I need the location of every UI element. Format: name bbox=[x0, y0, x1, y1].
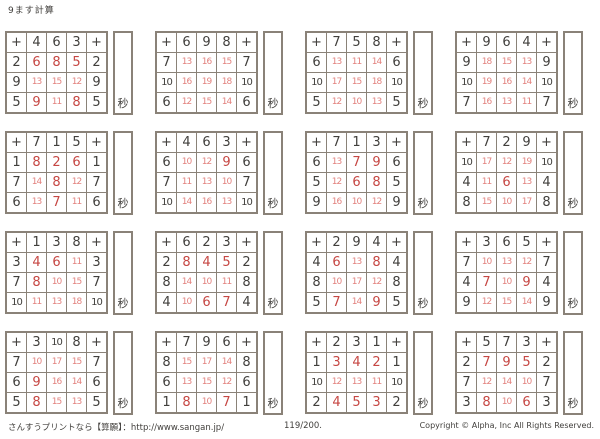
plus-operator: + bbox=[156, 32, 177, 53]
row-header-repeat: 1 bbox=[237, 393, 258, 414]
answer-cell: 10 bbox=[177, 293, 197, 314]
grid-header-row: +365+ bbox=[456, 232, 557, 253]
row-header-repeat: 1 bbox=[387, 353, 408, 373]
row-header: 7 bbox=[6, 273, 27, 293]
column-header: 3 bbox=[67, 32, 87, 53]
column-header: 7 bbox=[177, 332, 197, 353]
answer-cell: 16 bbox=[477, 93, 497, 114]
answer-cell: 13 bbox=[327, 53, 347, 73]
row-header-repeat: 9 bbox=[537, 293, 558, 314]
grid-row: 71013127 bbox=[456, 253, 557, 273]
addition-grid: +138+34611378101571011131810 bbox=[5, 231, 108, 314]
plus-operator: + bbox=[87, 132, 108, 153]
answer-cell: 8 bbox=[27, 153, 47, 173]
answer-cell: 4 bbox=[347, 353, 367, 373]
column-header: 1 bbox=[347, 132, 367, 153]
answer-cell: 12 bbox=[327, 373, 347, 393]
grid-header-row: +796+ bbox=[156, 332, 257, 353]
column-header: 9 bbox=[347, 232, 367, 253]
answer-cell: 2 bbox=[47, 153, 67, 173]
puzzle-block: +365+7101312747109491215149秒 bbox=[455, 231, 600, 331]
addition-grid: +463+6101296711131071014161310 bbox=[155, 131, 258, 214]
answer-cell: 11 bbox=[67, 193, 87, 214]
plus-operator: + bbox=[156, 132, 177, 153]
answer-cell: 8 bbox=[367, 253, 387, 273]
grid-row: 181071 bbox=[156, 393, 257, 414]
addition-grid: +713+61379651268591610129 bbox=[305, 131, 408, 214]
seconds-label: 秒 bbox=[268, 195, 279, 213]
answer-cell: 8 bbox=[27, 273, 47, 293]
answer-cell: 6 bbox=[497, 173, 517, 193]
seconds-label: 秒 bbox=[568, 195, 579, 213]
row-header: 2 bbox=[306, 393, 327, 414]
answer-cell: 10 bbox=[477, 253, 497, 273]
answer-cell: 6 bbox=[67, 153, 87, 173]
row-header: 10 bbox=[156, 73, 177, 93]
answer-cell: 10 bbox=[497, 193, 517, 214]
answer-cell: 2 bbox=[367, 353, 387, 373]
column-header: 3 bbox=[27, 332, 47, 353]
row-header-repeat: 5 bbox=[387, 173, 408, 193]
seconds-label: 秒 bbox=[568, 295, 579, 313]
row-header-repeat: 6 bbox=[387, 153, 408, 173]
grid-row: 5815135 bbox=[6, 393, 107, 414]
plus-operator: + bbox=[156, 332, 177, 353]
answer-cell: 9 bbox=[27, 93, 47, 114]
row-header: 6 bbox=[306, 53, 327, 73]
column-header: 2 bbox=[197, 232, 217, 253]
answer-cell: 7 bbox=[477, 353, 497, 373]
row-header-repeat: 8 bbox=[387, 273, 408, 293]
row-header-repeat: 2 bbox=[87, 53, 108, 73]
answer-cell: 9 bbox=[27, 373, 47, 393]
column-header: 8 bbox=[367, 32, 387, 53]
addition-grid: +3108+7101715769161465815135 bbox=[5, 331, 108, 414]
answer-cell: 14 bbox=[177, 193, 197, 214]
plus-operator: + bbox=[6, 32, 27, 53]
footer-site-credit: さんすうプリントなら【算願】：http://www.sangan.jp/ bbox=[8, 421, 224, 433]
column-header: 9 bbox=[197, 332, 217, 353]
grid-row: 81517148 bbox=[156, 353, 257, 373]
grid-row: 6916146 bbox=[6, 373, 107, 393]
puzzle-block: +713+61379651268591610129秒 bbox=[305, 131, 455, 231]
answer-cell: 12 bbox=[177, 93, 197, 114]
answer-cell: 9 bbox=[367, 153, 387, 173]
grid-row: 471094 bbox=[456, 273, 557, 293]
grid-header-row: +463+ bbox=[6, 32, 107, 53]
grid-row: 81410118 bbox=[156, 273, 257, 293]
column-header: 3 bbox=[367, 132, 387, 153]
row-header: 5 bbox=[306, 93, 327, 114]
puzzle-block: +573+2795271214107381063秒 bbox=[455, 331, 600, 431]
answer-cell: 10 bbox=[327, 273, 347, 293]
puzzle-block: +294+46138481017128571495秒 bbox=[305, 231, 455, 331]
row-header: 5 bbox=[306, 293, 327, 314]
grid-row: 27952 bbox=[456, 353, 557, 373]
row-header: 6 bbox=[156, 373, 177, 393]
plus-operator: + bbox=[456, 32, 477, 53]
answer-cell: 13 bbox=[347, 373, 367, 393]
grid-row: 1012131110 bbox=[306, 373, 407, 393]
answer-cell: 13 bbox=[217, 193, 237, 214]
answer-cell: 7 bbox=[327, 293, 347, 314]
answer-cell: 11 bbox=[47, 93, 67, 114]
answer-cell: 15 bbox=[67, 273, 87, 293]
answer-cell: 8 bbox=[67, 93, 87, 114]
column-header: 1 bbox=[47, 132, 67, 153]
grid-row: 18261 bbox=[6, 153, 107, 173]
time-box: 秒 bbox=[113, 331, 133, 415]
row-header-repeat: 5 bbox=[87, 93, 108, 114]
row-header-repeat: 8 bbox=[237, 273, 258, 293]
puzzle-block: +796+8151714861315126181071秒 bbox=[155, 331, 305, 431]
row-header: 9 bbox=[306, 193, 327, 214]
column-header: 7 bbox=[327, 32, 347, 53]
answer-cell: 13 bbox=[177, 373, 197, 393]
column-header: 6 bbox=[217, 332, 237, 353]
grid-header-row: +231+ bbox=[306, 332, 407, 353]
row-header: 6 bbox=[156, 153, 177, 173]
answer-cell: 18 bbox=[477, 53, 497, 73]
answer-cell: 12 bbox=[477, 373, 497, 393]
grid-row: 71214107 bbox=[456, 373, 557, 393]
plus-operator: + bbox=[387, 332, 408, 353]
grid-row: 6101296 bbox=[156, 153, 257, 173]
answer-cell: 16 bbox=[197, 53, 217, 73]
row-header: 4 bbox=[456, 173, 477, 193]
plus-operator: + bbox=[156, 232, 177, 253]
answer-cell: 9 bbox=[517, 273, 537, 293]
row-header: 5 bbox=[306, 173, 327, 193]
addition-grid: +463+2685291315129591185 bbox=[5, 31, 108, 114]
grid-row: 91815139 bbox=[456, 53, 557, 73]
answer-cell: 6 bbox=[197, 293, 217, 314]
answer-cell: 14 bbox=[517, 73, 537, 93]
answer-cell: 14 bbox=[347, 293, 367, 314]
column-header: 5 bbox=[477, 332, 497, 353]
plus-operator: + bbox=[237, 332, 258, 353]
grid-row: 51210135 bbox=[306, 93, 407, 114]
row-header-repeat: 10 bbox=[537, 73, 558, 93]
answer-cell: 14 bbox=[367, 53, 387, 73]
seconds-label: 秒 bbox=[418, 95, 429, 113]
row-header: 6 bbox=[306, 153, 327, 173]
grid-header-row: +294+ bbox=[306, 232, 407, 253]
answer-cell: 16 bbox=[177, 73, 197, 93]
page-footer: さんすうプリントなら【算願】：http://www.sangan.jp/ 119… bbox=[0, 421, 600, 435]
row-header: 7 bbox=[6, 173, 27, 193]
answer-cell: 15 bbox=[347, 73, 367, 93]
answer-cell: 10 bbox=[47, 273, 67, 293]
addition-grid: +623+2845281410118410674 bbox=[155, 231, 258, 314]
answer-cell: 12 bbox=[327, 173, 347, 193]
column-header: 5 bbox=[517, 232, 537, 253]
answer-cell: 13 bbox=[27, 193, 47, 214]
puzzle-block: +715+1826171481276137116秒 bbox=[5, 131, 155, 231]
column-header: 6 bbox=[47, 32, 67, 53]
grid-row: 24532 bbox=[306, 393, 407, 414]
answer-cell: 10 bbox=[497, 273, 517, 293]
row-header-repeat: 6 bbox=[237, 373, 258, 393]
grid-row: 1014161310 bbox=[156, 193, 257, 214]
grid-row: 346113 bbox=[6, 253, 107, 273]
time-box: 秒 bbox=[563, 231, 583, 315]
row-header: 6 bbox=[6, 193, 27, 214]
row-header-repeat: 1 bbox=[87, 153, 108, 173]
answer-cell: 12 bbox=[67, 173, 87, 193]
row-header-repeat: 5 bbox=[387, 293, 408, 314]
plus-operator: + bbox=[306, 232, 327, 253]
answer-cell: 8 bbox=[47, 173, 67, 193]
answer-cell: 11 bbox=[517, 93, 537, 114]
answer-cell: 14 bbox=[517, 293, 537, 314]
grid-row: 61315126 bbox=[156, 373, 257, 393]
column-header: 7 bbox=[477, 132, 497, 153]
row-header: 2 bbox=[156, 253, 177, 273]
answer-cell: 18 bbox=[67, 293, 87, 314]
answer-cell: 6 bbox=[517, 393, 537, 414]
row-header: 6 bbox=[156, 93, 177, 114]
grid-header-row: +463+ bbox=[156, 132, 257, 153]
grid-header-row: +623+ bbox=[156, 232, 257, 253]
row-header-repeat: 7 bbox=[237, 173, 258, 193]
row-header-repeat: 6 bbox=[237, 153, 258, 173]
time-box: 秒 bbox=[263, 231, 283, 315]
row-header: 7 bbox=[156, 173, 177, 193]
answer-cell: 13 bbox=[177, 53, 197, 73]
column-header: 6 bbox=[177, 32, 197, 53]
answer-cell: 17 bbox=[347, 273, 367, 293]
time-box: 秒 bbox=[563, 31, 583, 115]
answer-cell: 19 bbox=[477, 73, 497, 93]
answer-cell: 5 bbox=[67, 53, 87, 73]
row-header-repeat: 6 bbox=[87, 193, 108, 214]
plus-operator: + bbox=[456, 232, 477, 253]
row-header-repeat: 6 bbox=[387, 53, 408, 73]
seconds-label: 秒 bbox=[268, 95, 279, 113]
addition-grid: +758+61311146101715181051210135 bbox=[305, 31, 408, 114]
answer-cell: 16 bbox=[497, 73, 517, 93]
answer-cell: 13 bbox=[67, 393, 87, 414]
plus-operator: + bbox=[537, 332, 558, 353]
grid-header-row: +729+ bbox=[456, 132, 557, 153]
row-header-repeat: 7 bbox=[537, 373, 558, 393]
grid-header-row: +758+ bbox=[306, 32, 407, 53]
answer-cell: 5 bbox=[517, 353, 537, 373]
plus-operator: + bbox=[306, 32, 327, 53]
grid-row: 7810157 bbox=[6, 273, 107, 293]
plus-operator: + bbox=[237, 32, 258, 53]
row-header-repeat: 10 bbox=[387, 73, 408, 93]
answer-cell: 10 bbox=[177, 153, 197, 173]
column-header: 8 bbox=[67, 332, 87, 353]
row-header-repeat: 7 bbox=[87, 273, 108, 293]
row-header-repeat: 4 bbox=[537, 273, 558, 293]
seconds-label: 秒 bbox=[268, 395, 279, 413]
addition-grid: +715+1826171481276137116 bbox=[5, 131, 108, 214]
row-header: 1 bbox=[6, 153, 27, 173]
addition-grid: +964+91815139101916141071613117 bbox=[455, 31, 558, 114]
plus-operator: + bbox=[87, 232, 108, 253]
answer-cell: 12 bbox=[477, 293, 497, 314]
answer-cell: 17 bbox=[197, 353, 217, 373]
grid-row: 71316157 bbox=[156, 53, 257, 73]
grid-row: 571495 bbox=[306, 293, 407, 314]
row-header-repeat: 3 bbox=[537, 393, 558, 414]
answer-cell: 15 bbox=[67, 353, 87, 373]
column-header: 5 bbox=[67, 132, 87, 153]
seconds-label: 秒 bbox=[418, 195, 429, 213]
answer-cell: 11 bbox=[67, 253, 87, 273]
answer-cell: 13 bbox=[327, 153, 347, 173]
addition-grid: +698+71316157101619181061215146 bbox=[155, 31, 258, 114]
row-header-repeat: 10 bbox=[387, 373, 408, 393]
row-header: 2 bbox=[6, 53, 27, 73]
answer-cell: 11 bbox=[217, 273, 237, 293]
answer-cell: 15 bbox=[217, 53, 237, 73]
footer-copyright: Copyright © Alpha, Inc All Rights Reserv… bbox=[420, 421, 594, 430]
row-header: 3 bbox=[6, 253, 27, 273]
puzzle-block: +698+71316157101619181061215146秒 bbox=[155, 31, 305, 131]
answer-cell: 12 bbox=[217, 373, 237, 393]
column-header: 3 bbox=[347, 332, 367, 353]
plus-operator: + bbox=[306, 132, 327, 153]
time-box: 秒 bbox=[263, 331, 283, 415]
answer-cell: 14 bbox=[177, 273, 197, 293]
row-header-repeat: 10 bbox=[237, 73, 258, 93]
grid-header-row: +573+ bbox=[456, 332, 557, 353]
grid-row: 91215149 bbox=[456, 293, 557, 314]
row-header: 9 bbox=[456, 53, 477, 73]
row-header-repeat: 8 bbox=[537, 193, 558, 214]
column-header: 9 bbox=[517, 132, 537, 153]
answer-cell: 5 bbox=[347, 393, 367, 414]
row-header-repeat: 10 bbox=[87, 293, 108, 314]
grid-row: 28452 bbox=[156, 253, 257, 273]
row-header-repeat: 3 bbox=[87, 253, 108, 273]
row-header-repeat: 5 bbox=[87, 393, 108, 414]
grid-row: 1017121910 bbox=[456, 153, 557, 173]
answer-cell: 19 bbox=[197, 73, 217, 93]
grid-row: 81017128 bbox=[306, 273, 407, 293]
column-header: 3 bbox=[477, 232, 497, 253]
plus-operator: + bbox=[537, 132, 558, 153]
grid-row: 1011131810 bbox=[6, 293, 107, 314]
time-box: 秒 bbox=[413, 331, 433, 415]
answer-cell: 5 bbox=[217, 253, 237, 273]
answer-cell: 6 bbox=[27, 53, 47, 73]
row-header: 9 bbox=[456, 293, 477, 314]
time-box: 秒 bbox=[263, 31, 283, 115]
plus-operator: + bbox=[237, 132, 258, 153]
grid-row: 1016191810 bbox=[156, 73, 257, 93]
answer-cell: 3 bbox=[327, 353, 347, 373]
grid-header-row: +698+ bbox=[156, 32, 257, 53]
answer-cell: 11 bbox=[27, 293, 47, 314]
plus-operator: + bbox=[537, 32, 558, 53]
time-box: 秒 bbox=[113, 31, 133, 115]
grid-row: 71113107 bbox=[156, 173, 257, 193]
answer-cell: 18 bbox=[367, 73, 387, 93]
answer-cell: 12 bbox=[497, 153, 517, 173]
seconds-label: 秒 bbox=[268, 295, 279, 313]
answer-cell: 4 bbox=[197, 253, 217, 273]
plus-operator: + bbox=[456, 132, 477, 153]
column-header: 4 bbox=[517, 32, 537, 53]
answer-cell: 12 bbox=[67, 73, 87, 93]
row-header-repeat: 7 bbox=[537, 93, 558, 114]
row-header: 10 bbox=[306, 73, 327, 93]
row-header: 7 bbox=[156, 53, 177, 73]
grid-header-row: +713+ bbox=[306, 132, 407, 153]
row-header: 8 bbox=[156, 353, 177, 373]
seconds-label: 秒 bbox=[118, 95, 129, 113]
time-box: 秒 bbox=[563, 131, 583, 215]
column-header: 3 bbox=[517, 332, 537, 353]
column-header: 8 bbox=[67, 232, 87, 253]
answer-cell: 6 bbox=[347, 173, 367, 193]
answer-cell: 8 bbox=[477, 393, 497, 414]
puzzle-block: +623+2845281410118410674秒 bbox=[155, 231, 305, 331]
column-header: 8 bbox=[217, 32, 237, 53]
row-header-repeat: 10 bbox=[537, 153, 558, 173]
row-header: 6 bbox=[6, 373, 27, 393]
plus-operator: + bbox=[6, 232, 27, 253]
row-header: 8 bbox=[156, 273, 177, 293]
row-header-repeat: 2 bbox=[237, 253, 258, 273]
seconds-label: 秒 bbox=[568, 95, 579, 113]
answer-cell: 13 bbox=[47, 293, 67, 314]
answer-cell: 10 bbox=[27, 353, 47, 373]
plus-operator: + bbox=[306, 332, 327, 353]
answer-cell: 12 bbox=[367, 193, 387, 214]
grid-row: 71613117 bbox=[456, 93, 557, 114]
time-box: 秒 bbox=[413, 31, 433, 115]
row-header: 2 bbox=[456, 353, 477, 373]
answer-cell: 15 bbox=[47, 73, 67, 93]
answer-cell: 14 bbox=[27, 173, 47, 193]
answer-cell: 14 bbox=[217, 93, 237, 114]
grid-row: 81510178 bbox=[456, 193, 557, 214]
grid-row: 613796 bbox=[306, 153, 407, 173]
puzzle-block: +964+91815139101916141071613117秒 bbox=[455, 31, 600, 131]
row-header: 1 bbox=[156, 393, 177, 414]
answer-cell: 9 bbox=[217, 153, 237, 173]
answer-cell: 10 bbox=[217, 173, 237, 193]
answer-cell: 10 bbox=[197, 273, 217, 293]
answer-cell: 4 bbox=[27, 253, 47, 273]
row-header-repeat: 5 bbox=[387, 93, 408, 114]
page-title: 9ます計算 bbox=[8, 3, 55, 16]
answer-cell: 15 bbox=[197, 93, 217, 114]
row-header: 8 bbox=[456, 193, 477, 214]
row-header: 9 bbox=[6, 73, 27, 93]
row-header-repeat: 10 bbox=[237, 193, 258, 214]
answer-cell: 14 bbox=[67, 373, 87, 393]
answer-cell: 12 bbox=[197, 153, 217, 173]
grid-row: 410674 bbox=[156, 293, 257, 314]
plus-operator: + bbox=[537, 232, 558, 253]
column-header: 6 bbox=[497, 232, 517, 253]
column-header: 3 bbox=[47, 232, 67, 253]
grid-header-row: +138+ bbox=[6, 232, 107, 253]
row-header-repeat: 9 bbox=[537, 53, 558, 73]
puzzle-block: +3108+7101715769161465815135秒 bbox=[5, 331, 155, 431]
time-box: 秒 bbox=[563, 331, 583, 415]
grid-row: 7148127 bbox=[6, 173, 107, 193]
answer-cell: 10 bbox=[517, 373, 537, 393]
answer-cell: 14 bbox=[217, 353, 237, 373]
